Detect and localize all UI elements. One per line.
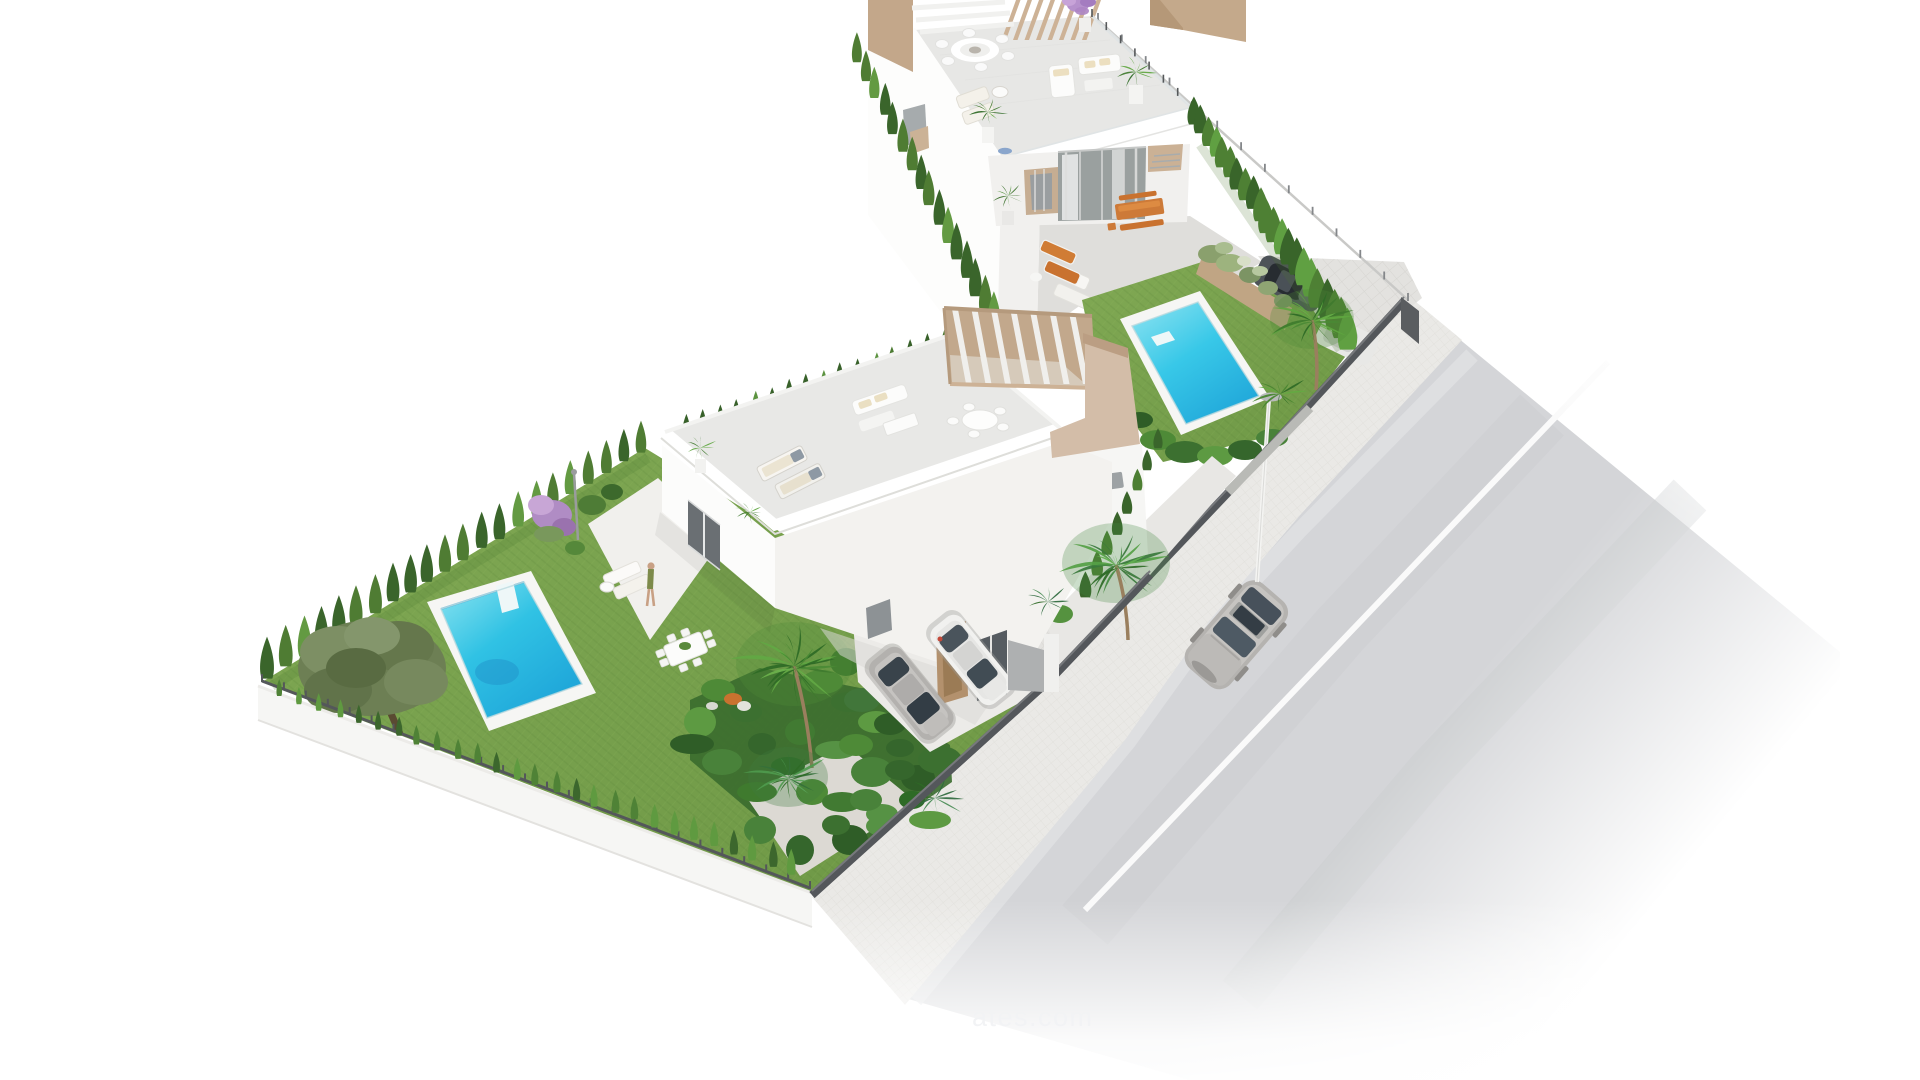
svg-text:ates.com: ates.com [972,1002,1094,1032]
